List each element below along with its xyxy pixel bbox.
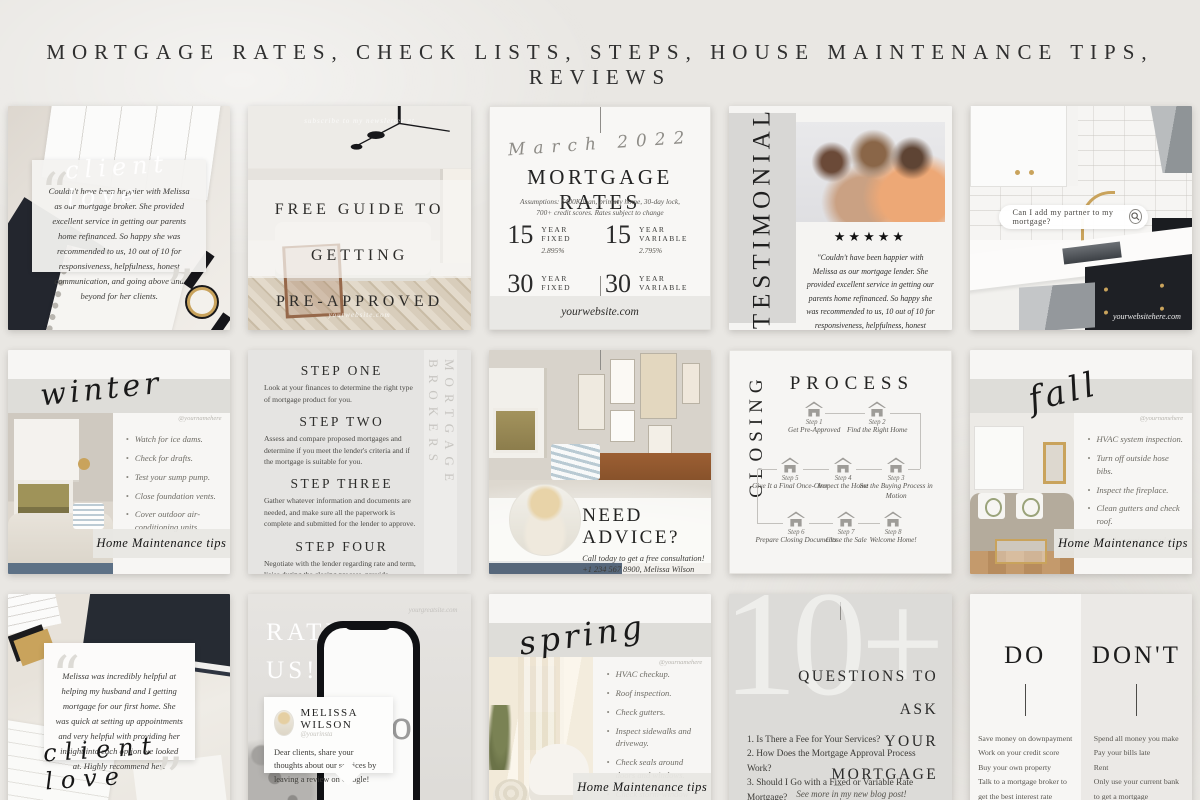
rate-label: YEAR VARIABLE — [639, 222, 693, 243]
tile-mortgage-steps: MORTGAGE BROKERS STEP ONE Look at your f… — [248, 350, 470, 574]
checklist-item: Close foundation vents. — [126, 490, 222, 503]
step-block: STEP THREE Gather whatever information a… — [264, 476, 420, 529]
checklist-item: Clean gutters and check roof. — [1087, 502, 1183, 528]
maintenance-banner: Home Maintenance tips — [1054, 529, 1192, 558]
blog-note: See more in my new blog post! — [774, 789, 930, 799]
website-note: yourgreatsite.com — [409, 607, 458, 614]
checklist-item: Test your sump pump. — [126, 471, 222, 484]
step-number: Step 2 — [835, 419, 919, 426]
dont-item: to get a mortgage — [1094, 790, 1179, 800]
dishwasher — [1019, 283, 1095, 330]
newsletter-note: subscribe to my newsletter at — [248, 117, 470, 125]
window-shade — [14, 419, 79, 480]
search-query-text: Can I add my partner to my mortgage? — [1013, 208, 1129, 226]
testimonial-text: "Couldn't have been happier with Melissa… — [806, 251, 935, 330]
rate-term: 15 — [507, 222, 533, 248]
rug — [8, 563, 113, 574]
advice-phone: +1 234 567 8900, Melissa Wilson — [582, 565, 707, 574]
checklist-item: Watch for ice dams. — [126, 433, 222, 446]
sconce-lamp — [78, 458, 90, 470]
website-footer: yourwebsitehere.com — [1113, 312, 1181, 321]
step-title: STEP TWO — [264, 414, 420, 430]
rate-term: 30 — [605, 271, 631, 297]
social-handle: @yournamehere — [659, 659, 702, 666]
broker-avatar — [274, 710, 294, 736]
do-item: Talk to a mortgage broker to — [978, 775, 1072, 789]
step-body: Look at your finances to determine the r… — [264, 382, 420, 405]
desk-calendar — [8, 594, 61, 635]
phone-notch — [344, 621, 393, 630]
step-label: Welcome Home! — [851, 536, 935, 546]
process-title: PROCESS — [790, 373, 914, 395]
rate-value: 2.795% — [639, 246, 693, 255]
search-icon — [1129, 209, 1142, 224]
coffee-table — [995, 539, 1047, 565]
open-quote-icon: “ — [52, 667, 81, 689]
social-handle: @yournamehere — [1140, 415, 1183, 422]
tile-need-advice: NEED ADVICE? Call today to get a free co… — [489, 350, 711, 574]
tile-questions-to-ask: 10+ QUESTIONS TO ASK YOUR MORTGAGE BROKE… — [729, 594, 951, 800]
review-request-message: Dear clients, share your thoughts about … — [274, 746, 383, 786]
rate-term: 30 — [507, 271, 533, 297]
questions-title-line1: QUESTIONS TO ASK — [778, 661, 938, 726]
tile-client-review-notebook: client love “ Couldn't have been happier… — [8, 106, 230, 330]
do-column: DO Save money on downpayment Work on you… — [970, 594, 1081, 800]
step-number: Step 8 — [851, 529, 935, 536]
gold-mirror — [1043, 442, 1066, 484]
advice-title: NEED ADVICE? — [582, 505, 707, 549]
house-icon — [868, 401, 886, 417]
ceiling-lamp — [337, 106, 462, 164]
do-item: Work on your credit score — [978, 746, 1072, 760]
social-handle: @yournamehere — [178, 415, 221, 422]
pillow — [1016, 493, 1043, 519]
tile-kitchen-search: Can I add my partner to my mortgage? you… — [970, 106, 1192, 330]
kitchen-cabinets — [974, 426, 1024, 491]
process-step: Step 8 Welcome Home! — [851, 511, 935, 546]
five-star-rating-icon: ★★★★★ — [806, 230, 935, 245]
checklist-item: Check for drafts. — [126, 452, 222, 465]
gallery-wall — [578, 359, 703, 453]
checklist-item: HVAC checkup. — [607, 668, 703, 681]
mock-search-bar: Can I add my partner to my mortgage? — [999, 205, 1148, 229]
winter-checklist: Watch for ice dams. Check for drafts. Te… — [126, 433, 222, 540]
clients-photo — [796, 122, 945, 223]
do-item: Buy your own property — [978, 761, 1072, 775]
pillow — [73, 503, 104, 529]
step-title: STEP FOUR — [264, 539, 420, 555]
broker-avatar — [509, 484, 581, 556]
tile-rate-us: RATE US! yourgreatsite.com Google Google… — [248, 594, 470, 800]
tile-winter-maintenance: winter @yournamehere Watch for ice dams.… — [8, 350, 230, 574]
dont-item: Pay your bills late — [1094, 746, 1179, 760]
tile-testimonial: TESTIMONIAL ★★★★★ "Couldn't have been ha… — [729, 106, 951, 330]
checklist-item: Roof inspection. — [607, 687, 703, 700]
dont-item: Rent — [1094, 761, 1179, 775]
rate-label: YEAR VARIABLE — [639, 271, 693, 292]
free-guide-line2: GETTING — [248, 233, 470, 279]
testimonial-side-label: TESTIMONIAL — [738, 119, 787, 316]
step-label: Find the Right Home — [835, 426, 919, 436]
page-title: MORTGAGE RATES, CHECK LISTS, STEPS, HOUS… — [0, 0, 1200, 90]
tile-spring-maintenance: spring @yournamehere HVAC checkup. Roof … — [489, 594, 711, 800]
do-list: Save money on downpayment Work on your c… — [978, 732, 1072, 800]
question-item: 2. How Does the Mortgage Approval Proces… — [747, 747, 925, 776]
step-block: STEP ONE Look at your finances to determ… — [264, 363, 420, 405]
checklist-item: Inspect the fireplace. — [1087, 484, 1183, 497]
free-guide-line3: PRE-APPROVED — [248, 279, 470, 325]
tile-client-love-review: “ Melissa was incredibly helpful at help… — [8, 594, 230, 800]
step-block: STEP FOUR Negotiate with the lender rega… — [264, 539, 420, 574]
testimonial-content: ★★★★★ "Couldn't have been happier with M… — [796, 222, 945, 321]
checklist-item: Turn off outside hose bibs. — [1087, 452, 1183, 478]
divider-line — [1025, 684, 1026, 716]
pillow — [551, 444, 600, 480]
step-body: Assess and compare proposed mortgages an… — [264, 433, 420, 467]
free-guide-line1: FREE GUIDE TO — [248, 187, 470, 233]
tile-mortgage-rates: March 2022 MORTGAGE RATES Assumptions: $… — [489, 106, 711, 330]
rate-label: YEAR FIXED — [541, 271, 595, 292]
house-icon — [805, 401, 823, 417]
rate-item: 15 YEAR FIXED 2.895% — [507, 222, 595, 255]
dont-item: Spend all money you make — [1094, 732, 1179, 746]
step-block: STEP TWO Assess and compare proposed mor… — [264, 414, 420, 467]
rate-assumptions: Assumptions: $400K loan, primary home, 3… — [512, 196, 688, 219]
dont-list: Spend all money you make Pay your bills … — [1094, 732, 1179, 800]
rate-value: 2.895% — [541, 246, 595, 255]
plant — [489, 705, 512, 770]
upper-cabinet — [970, 106, 1068, 187]
step-title: STEP ONE — [264, 363, 420, 379]
question-item: 1. Is There a Fee for Your Services? — [747, 733, 925, 747]
advice-cta: Call today to get a free consultation! — [582, 554, 707, 563]
tile-closing-process: PROCESS CLOSING Step 1 Get Pre-Approved … — [729, 350, 951, 574]
do-heading: DO — [970, 642, 1081, 670]
step-label: Set the Buying Process in Motion — [854, 482, 938, 501]
close-quote-icon: “ — [167, 247, 196, 269]
open-quote-icon: “ — [40, 184, 69, 206]
rate-label: YEAR FIXED — [541, 222, 595, 243]
tile-fall-maintenance: fall @yournamehere HVAC system inspectio… — [970, 350, 1192, 574]
template-grid: client love “ Couldn't have been happier… — [8, 106, 1192, 800]
divider-line — [600, 107, 601, 133]
broker-handle: @yourinsta — [301, 731, 383, 738]
step-number: Step 3 — [854, 475, 938, 482]
tile-free-guide: subscribe to my newsletter at FREE GUIDE… — [248, 106, 470, 330]
house-icon — [834, 457, 852, 473]
process-step: Step 2 Find the Right Home — [835, 401, 919, 436]
house-icon — [781, 457, 799, 473]
house-icon — [884, 511, 902, 527]
checklist-item: Inspect sidewalks and driveway. — [607, 725, 703, 751]
do-item: Save money on downpayment — [978, 732, 1072, 746]
checklist-item: HVAC system inspection. — [1087, 433, 1183, 446]
dont-item: Only use your current bank — [1094, 775, 1179, 789]
divider-line — [1136, 684, 1137, 716]
step-title: STEP THREE — [264, 476, 420, 492]
divider-line — [600, 276, 601, 296]
dont-heading: DON'T — [1081, 642, 1192, 670]
free-guide-title: FREE GUIDE TO GETTING PRE-APPROVED — [248, 187, 470, 326]
do-item: get the best interest rate — [978, 790, 1072, 800]
steps-content: STEP ONE Look at your finances to determ… — [264, 363, 420, 574]
checklist-item: Check gutters. — [607, 706, 703, 719]
pillow — [978, 493, 1005, 519]
advice-text: NEED ADVICE? Call today to get a free co… — [582, 505, 707, 574]
mortgage-brokers-side-label: MORTGAGE BROKERS — [426, 359, 455, 565]
maintenance-banner: Home Maintenance tips — [573, 773, 711, 800]
website-footer: yourwebsite.com — [490, 296, 710, 329]
review-request-card: MELISSA WILSON @yourinsta Dear clients, … — [264, 697, 393, 773]
maintenance-banner: Home Maintenance tips — [93, 529, 231, 558]
step-body: Negotiate with the lender regarding rate… — [264, 558, 420, 574]
window-view — [493, 408, 537, 453]
step-body: Gather whatever information and document… — [264, 495, 420, 529]
house-icon — [887, 457, 905, 473]
rate-item: 15 YEAR VARIABLE 2.795% — [605, 222, 693, 255]
house-icon — [787, 511, 805, 527]
process-step: Step 3 Set the Buying Process in Motion — [854, 457, 938, 501]
broker-name: MELISSA WILSON — [301, 707, 383, 731]
website-footer: yourwebsite.com — [248, 311, 470, 319]
rate-term: 15 — [605, 222, 631, 248]
dont-column: DON'T Spend all money you make Pay your … — [1081, 594, 1192, 800]
client-love-script: client love — [64, 145, 230, 212]
tile-do-dont: DO Save money on downpayment Work on you… — [970, 594, 1192, 800]
